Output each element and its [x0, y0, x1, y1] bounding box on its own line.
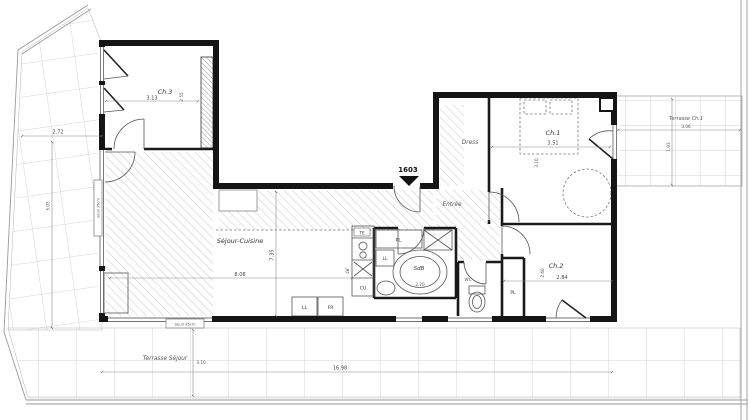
dim-ch1-width: 3.51 — [547, 141, 558, 147]
closet-label-kitchen: PL. — [396, 238, 403, 244]
dim-ch3-depth: 2.55 — [179, 92, 184, 102]
dress-hatch — [440, 105, 464, 186]
fixture-label-cu: CU — [360, 286, 367, 292]
fixture-label-ll: LL — [302, 305, 308, 311]
dim-ch1-depth: 3.10 — [534, 158, 539, 168]
dim-ch3-width: 3.13 — [146, 96, 157, 102]
corridor-closet — [219, 190, 257, 211]
dim-terrace-sejour-depth: 3.10 — [196, 360, 206, 365]
fixture-label-te: TE — [359, 231, 365, 236]
dim-ch2-depth: 2.60 — [540, 268, 545, 278]
bottom-terrace-grid — [8, 328, 740, 398]
room-label-ch3: Ch.3 — [158, 88, 173, 96]
ch1-corner-duct — [600, 98, 614, 111]
dim-ch2-width: 2.84 — [556, 275, 567, 281]
floor-plan-drawing: 1603 Seuil 35cm Seuil 35cm Ch.3 3.13 2.5… — [0, 0, 750, 420]
terrace-label-sejour: Terrasse Séjour — [143, 355, 188, 362]
threshold-label-bottom: Seuil 35cm — [174, 322, 195, 327]
room-label-entree: Entrée — [442, 201, 462, 208]
terrace-label-ch1: Terrasse Ch.1 — [669, 116, 703, 122]
floor-plan-canvas: 1603 Seuil 35cm Seuil 35cm Ch.3 3.13 2.5… — [0, 0, 750, 420]
threshold-label-left: Seuil 35cm — [97, 198, 101, 218]
dim-sejour-width: 8.08 — [234, 272, 245, 278]
fixture-label-lv: LV — [345, 268, 351, 274]
dim-sdb-width: 2.20 — [415, 282, 425, 287]
room-label-ch2: Ch.2 — [549, 262, 564, 270]
closet-label-ch2: PL — [510, 290, 516, 296]
lot-number: 1603 — [398, 166, 418, 174]
room-label-dress: Dress — [462, 140, 478, 146]
dim-total-width: 16.98 — [333, 366, 347, 372]
right-terrace-grid — [616, 96, 742, 186]
room-label-ch1: Ch.1 — [546, 129, 561, 137]
room-label-sejour: Séjour-Cuisine — [217, 237, 263, 245]
dim-sejour-depth: 7.35 — [270, 249, 276, 260]
dim-terrace-left-width: 2.72 — [52, 130, 63, 136]
fixture-label-fr: FR — [328, 305, 335, 311]
left-terrace-grid — [8, 8, 102, 330]
room-label-sdb: SdB — [414, 266, 425, 272]
dim-terrace-ch1-width: 3.06 — [681, 124, 691, 129]
dim-terrace-left-depth: 5.05 — [46, 201, 51, 211]
room-label-wc: WC — [464, 277, 471, 282]
sejour-west-arm-hatch — [105, 152, 213, 316]
wall-poche-ch3 — [201, 57, 213, 148]
fixture-label-ll-bath: LL — [382, 256, 388, 262]
dim-terrace-ch1-depth: 1.93 — [666, 142, 671, 152]
